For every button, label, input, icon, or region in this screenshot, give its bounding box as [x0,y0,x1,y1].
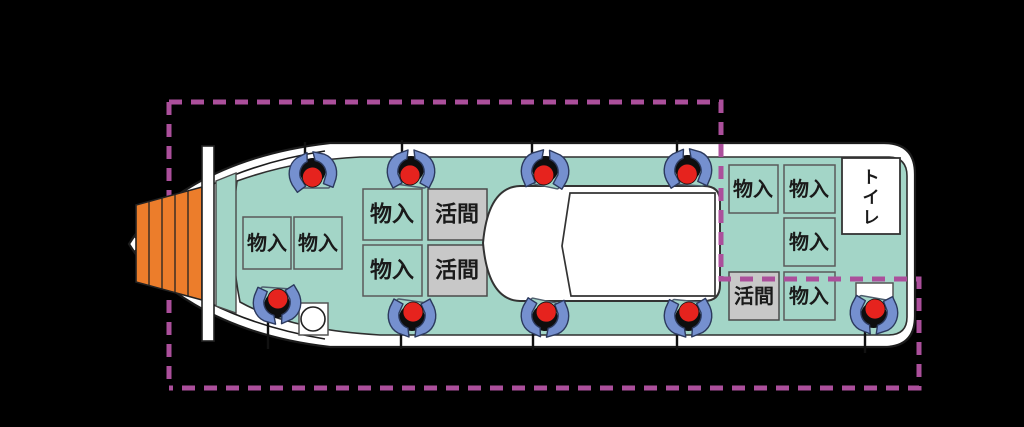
bow-mast [202,146,214,341]
live-well-box-mid-1: 活間 [428,189,487,240]
storage-box-mid-1: 物入 [363,189,422,240]
storage-label: 物入 [370,258,414,284]
storage-label: 物入 [733,177,773,201]
storage-label: 物入 [789,177,829,201]
storage-label: 物入 [789,230,829,254]
canvas: 物入 物入 物入 活間 物入 活間 物入 [0,0,1024,427]
live-well-label: 活間 [435,259,479,284]
boat: 物入 物入 物入 活間 物入 活間 物入 [129,140,915,353]
toilet-label-char: イ [863,188,880,208]
storage-box-bow-1: 物入 [243,217,291,269]
toilet-room: ト イ レ [842,158,900,234]
bait-bucket [299,303,328,335]
storage-box-bow-2: 物入 [294,217,342,269]
storage-box-stern-3: 物入 [784,218,835,266]
bow-sprit-body [136,187,202,300]
bow-platform [216,173,236,313]
storage-box-mid-2: 物入 [363,245,422,296]
live-well-box-mid-2: 活間 [428,245,487,296]
toilet-label-char: ト [863,168,880,188]
storage-box-stern-2: 物入 [784,165,835,213]
toilet-label-char: レ [863,208,880,228]
live-well-label: 活間 [734,284,774,308]
storage-label: 物入 [298,231,338,255]
boat-deck-diagram: 物入 物入 物入 活間 物入 活間 物入 [0,0,1024,427]
storage-label: 物入 [789,284,829,308]
live-well-label: 活間 [435,203,479,228]
storage-box-stern-1: 物入 [729,165,778,213]
storage-label: 物入 [247,231,287,255]
bow-sprit [136,187,202,300]
bait-bucket-circle [301,307,325,331]
storage-label: 物入 [370,202,414,228]
cabin-roof [562,193,715,296]
